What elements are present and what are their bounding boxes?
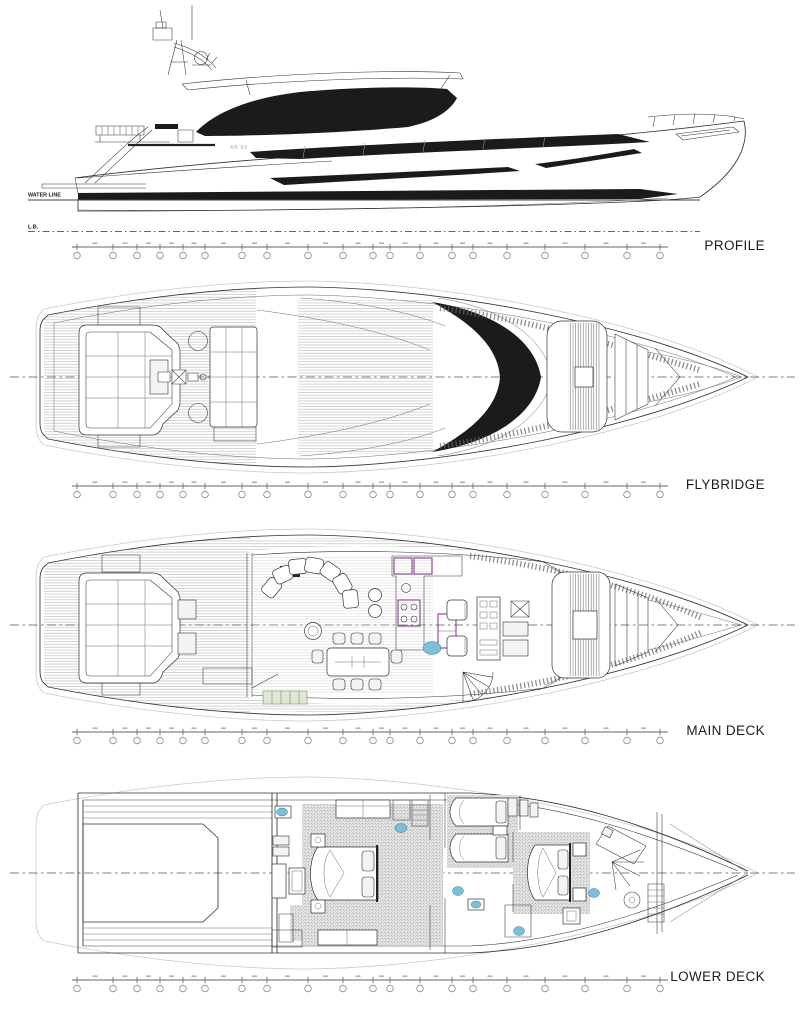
pillow [602, 827, 614, 838]
boot-stripe [78, 189, 678, 200]
bow-railing [648, 114, 744, 128]
master-bench [318, 930, 377, 945]
pillow [362, 877, 374, 897]
ottoman [369, 589, 382, 602]
general-arrangement-sheet: WATER LINE L.B. [0, 0, 800, 1018]
flybridge-sunpad-aft [210, 327, 257, 427]
toilet [589, 889, 600, 898]
ottoman [369, 605, 382, 618]
hull-window-aft [270, 167, 520, 185]
nightstand [573, 888, 586, 901]
pillow [362, 851, 374, 871]
pillow [558, 876, 568, 895]
flybridge-glass [196, 87, 457, 136]
ga-drawing: WATER LINE L.B. [0, 0, 800, 1018]
coffee-table [305, 623, 322, 640]
nightstand [573, 843, 586, 856]
aft-canopy [155, 124, 178, 129]
toilet [453, 887, 464, 896]
helm-seat [447, 600, 467, 620]
lower-deck-view: LOWER DECK [10, 777, 795, 984]
toilet [395, 824, 407, 833]
helm-console [477, 597, 500, 660]
baseline-label: L.B. [28, 225, 39, 231]
main-deck-view: MAIN DECK [10, 529, 795, 738]
round-shower [624, 892, 640, 908]
nightstand [493, 826, 507, 835]
pillow [496, 801, 506, 823]
sideboard [263, 691, 307, 704]
nightstand [311, 900, 325, 913]
helm-seat [447, 636, 467, 656]
profile-view: WATER LINE L.B. [28, 5, 765, 253]
radar-mast [153, 5, 217, 75]
bow-window [676, 127, 739, 140]
profile-label: PROFILE [704, 238, 765, 253]
pillow [558, 850, 568, 869]
flybridge-view: FLYBRIDGE [10, 281, 795, 492]
flybridge-label: FLYBRIDGE [686, 477, 765, 492]
pillow [496, 837, 506, 859]
waterline-label: WATER LINE [28, 193, 61, 199]
nightstand [311, 834, 325, 847]
hull-window-fwd [535, 149, 642, 168]
helm-station [423, 597, 529, 660]
main-deck-label: MAIN DECK [686, 723, 765, 738]
toilet [514, 927, 525, 936]
bow-sunpad [547, 321, 607, 432]
swim-platform [42, 184, 146, 188]
hull-model-mark: AB 80 [230, 145, 248, 151]
dayhead-basin [423, 642, 441, 655]
maindeck-glass [250, 134, 650, 159]
lower-deck-label: LOWER DECK [670, 969, 765, 984]
toilet [277, 808, 288, 816]
forepeak-crew [589, 812, 749, 934]
basin [471, 901, 481, 908]
